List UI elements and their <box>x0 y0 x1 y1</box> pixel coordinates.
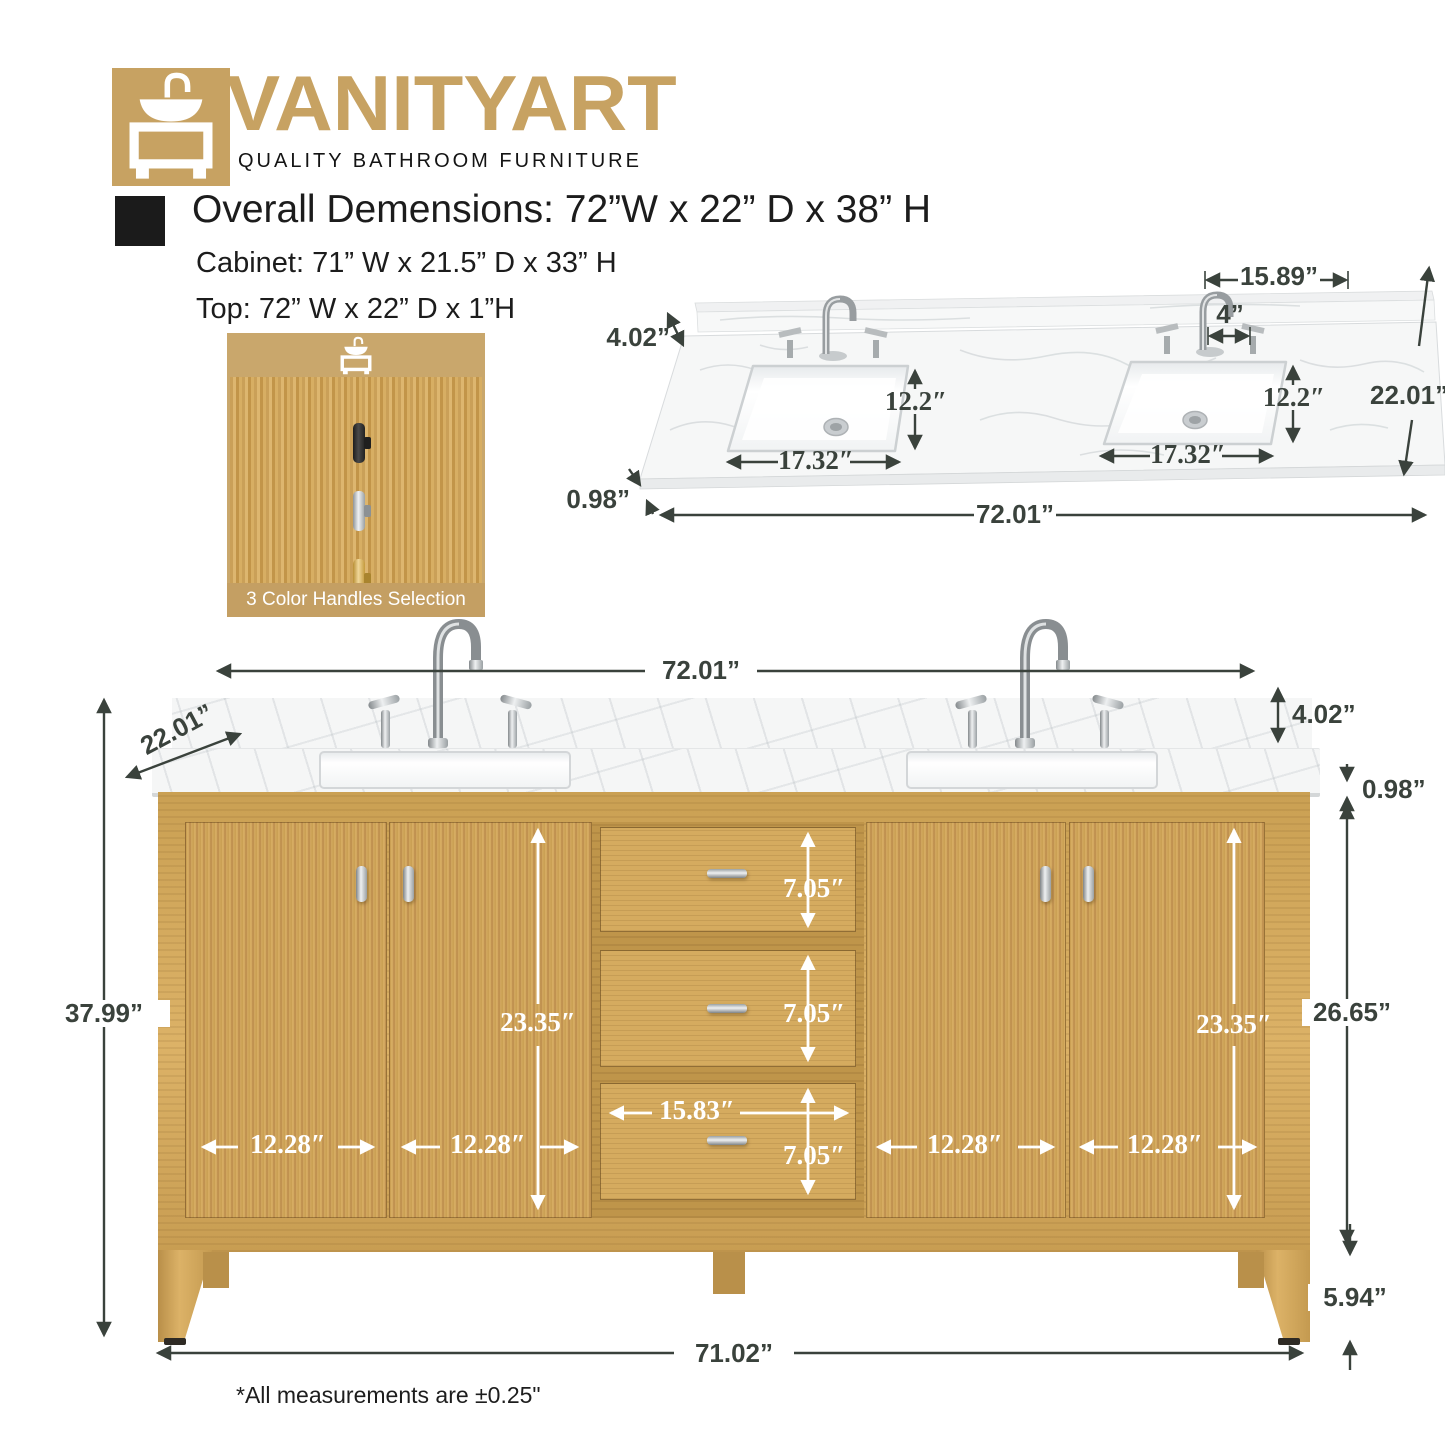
drawer-2-handle <box>707 1004 747 1013</box>
dim-fv-height: 37.99” <box>38 1000 170 1027</box>
dim-fv-thickness: 0.98” <box>1362 776 1442 803</box>
back-leg-center <box>713 1252 745 1294</box>
front-countertop <box>152 748 1320 797</box>
door-1-handle <box>356 866 367 902</box>
dim-tv-depth: 22.01” <box>1370 382 1445 409</box>
door-3-handle <box>1040 866 1051 902</box>
dim-tv-sink-depth-right: 12.2″ <box>1258 383 1330 411</box>
vanity-cabinet <box>158 792 1310 1252</box>
dim-fv-drawer-2: 7.05″ <box>783 999 875 1027</box>
dim-fv-cabinet-side: 26.65” <box>1302 999 1402 1026</box>
dim-fv-door-1: 12.28″ <box>238 1130 338 1158</box>
dim-fv-leg: 5.94” <box>1308 1284 1402 1311</box>
brand-logo <box>112 68 230 186</box>
overall-dimensions-text: Overall Demensions: 72”W x 22” D x 38” H <box>192 188 931 232</box>
dim-tv-sink-depth-left: 12.2″ <box>880 387 952 415</box>
back-leg-right <box>1238 1252 1264 1288</box>
dim-fv-door-3: 12.28″ <box>915 1130 1015 1158</box>
vanityart-logo-icon-small <box>334 335 378 375</box>
front-backsplash <box>172 698 1312 749</box>
dim-fv-drawer-1: 7.05″ <box>783 874 875 902</box>
dim-tv-width: 72.01” <box>972 501 1058 528</box>
wood-texture-sample <box>230 377 482 583</box>
black-handle-mount <box>364 437 371 449</box>
vanityart-logo-icon <box>112 68 230 186</box>
door-2-handle <box>403 866 414 902</box>
dim-fv-drawer-width: 15.83″ <box>644 1096 750 1124</box>
dim-tv-backsplash-right: 15.89” <box>1234 263 1324 290</box>
right-leg-foot <box>1278 1338 1300 1345</box>
handles-selection-card: 3 Color Handles Selection <box>227 333 485 617</box>
dim-tv-hole-spacing: 4” <box>1206 301 1254 328</box>
cabinet-dimensions-text: Cabinet: 71” W x 21.5” D x 33” H <box>196 247 617 280</box>
measurement-tolerance-note: *All measurements are ±0.25" <box>236 1382 541 1409</box>
front-right-leg <box>1256 1250 1310 1342</box>
marble-veins <box>670 304 1424 455</box>
dim-tv-sink-width-right: 17.32″ <box>1142 440 1234 468</box>
dim-fv-width-top: 72.01” <box>645 657 757 684</box>
dim-tv-backsplash-height: 4.02” <box>598 324 670 351</box>
back-leg-left <box>203 1252 229 1288</box>
dim-tv-sink-width-left: 17.32″ <box>770 446 862 474</box>
dim-fv-backsplash-height: 4.02” <box>1292 701 1376 728</box>
left-leg-foot <box>164 1338 186 1345</box>
drawer-3-handle <box>707 1136 747 1145</box>
section-bullet <box>115 196 165 246</box>
brand-tagline: QUALITY BATHROOM FURNITURE <box>238 150 642 173</box>
door-4-handle <box>1083 866 1094 902</box>
drawer-1-handle <box>707 869 747 878</box>
dim-tv-thickness: 0.98” <box>556 486 630 513</box>
faucet-left-top-view <box>779 299 887 361</box>
top-dimensions-text: Top: 72” W x 22” D x 1”H <box>196 293 515 326</box>
dim-fv-opening-right: 23.35″ <box>1174 1010 1294 1038</box>
dim-fv-door-2: 12.28″ <box>438 1130 538 1158</box>
dim-fv-door-4: 12.28″ <box>1115 1130 1215 1158</box>
brand-name: VANITYART <box>226 58 808 158</box>
chrome-handle-mount <box>364 505 371 517</box>
dim-fv-width-bottom: 71.02” <box>674 1340 794 1367</box>
dim-fv-opening-left: 23.35″ <box>478 1008 598 1036</box>
dim-fv-drawer-3: 7.05″ <box>783 1141 875 1169</box>
handles-card-caption: 3 Color Handles Selection <box>227 583 485 617</box>
